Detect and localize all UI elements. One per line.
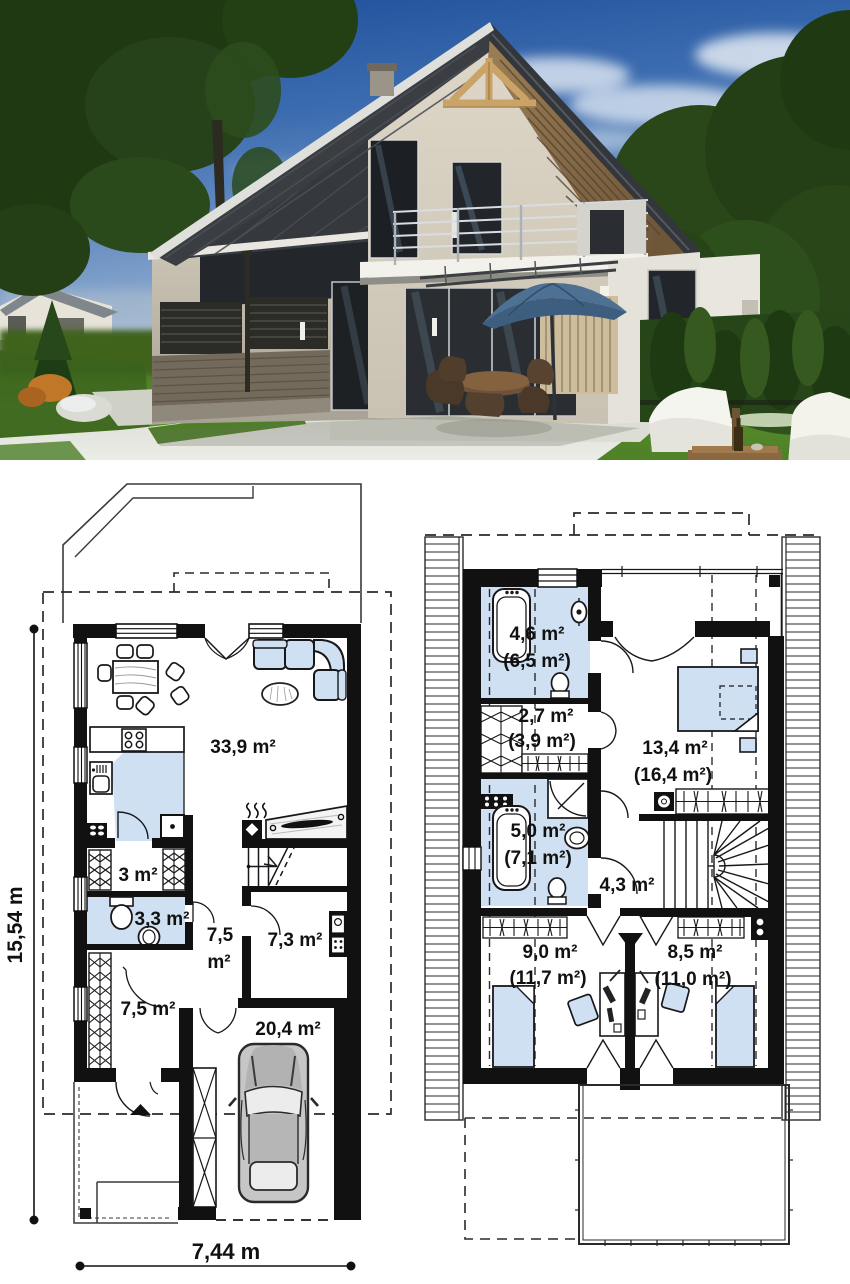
svg-text:(6,5 m²): (6,5 m²) [503,651,571,672]
svg-text:4,3 m²: 4,3 m² [600,875,655,896]
svg-text:9,0 m²: 9,0 m² [523,942,578,963]
svg-text:4,6 m²: 4,6 m² [510,624,565,645]
svg-text:20,4 m²: 20,4 m² [255,1019,320,1040]
svg-text:3 m²: 3 m² [118,865,157,886]
svg-text:15,54 m: 15,54 m [4,886,27,963]
svg-text:(11,0 m²): (11,0 m²) [654,969,731,990]
svg-text:(11,7 m²): (11,7 m²) [509,968,586,989]
svg-text:m²: m² [207,952,230,973]
svg-text:5,0 m²: 5,0 m² [511,821,566,842]
svg-text:2,7 m²: 2,7 m² [519,706,574,727]
svg-text:13,4 m²: 13,4 m² [642,738,707,759]
svg-text:7,5 m²: 7,5 m² [121,999,176,1020]
svg-text:7,44 m: 7,44 m [192,1239,261,1264]
svg-text:7,5: 7,5 [207,925,234,946]
svg-text:3,3 m²: 3,3 m² [135,909,190,930]
svg-text:8,5 m²: 8,5 m² [668,942,723,963]
svg-text:(7,1 m²): (7,1 m²) [504,848,572,869]
svg-text:33,9 m²: 33,9 m² [210,737,275,758]
svg-text:(16,4 m²): (16,4 m²) [634,765,712,786]
svg-text:7,3 m²: 7,3 m² [268,930,323,951]
svg-text:(3,9 m²): (3,9 m²) [508,731,576,752]
